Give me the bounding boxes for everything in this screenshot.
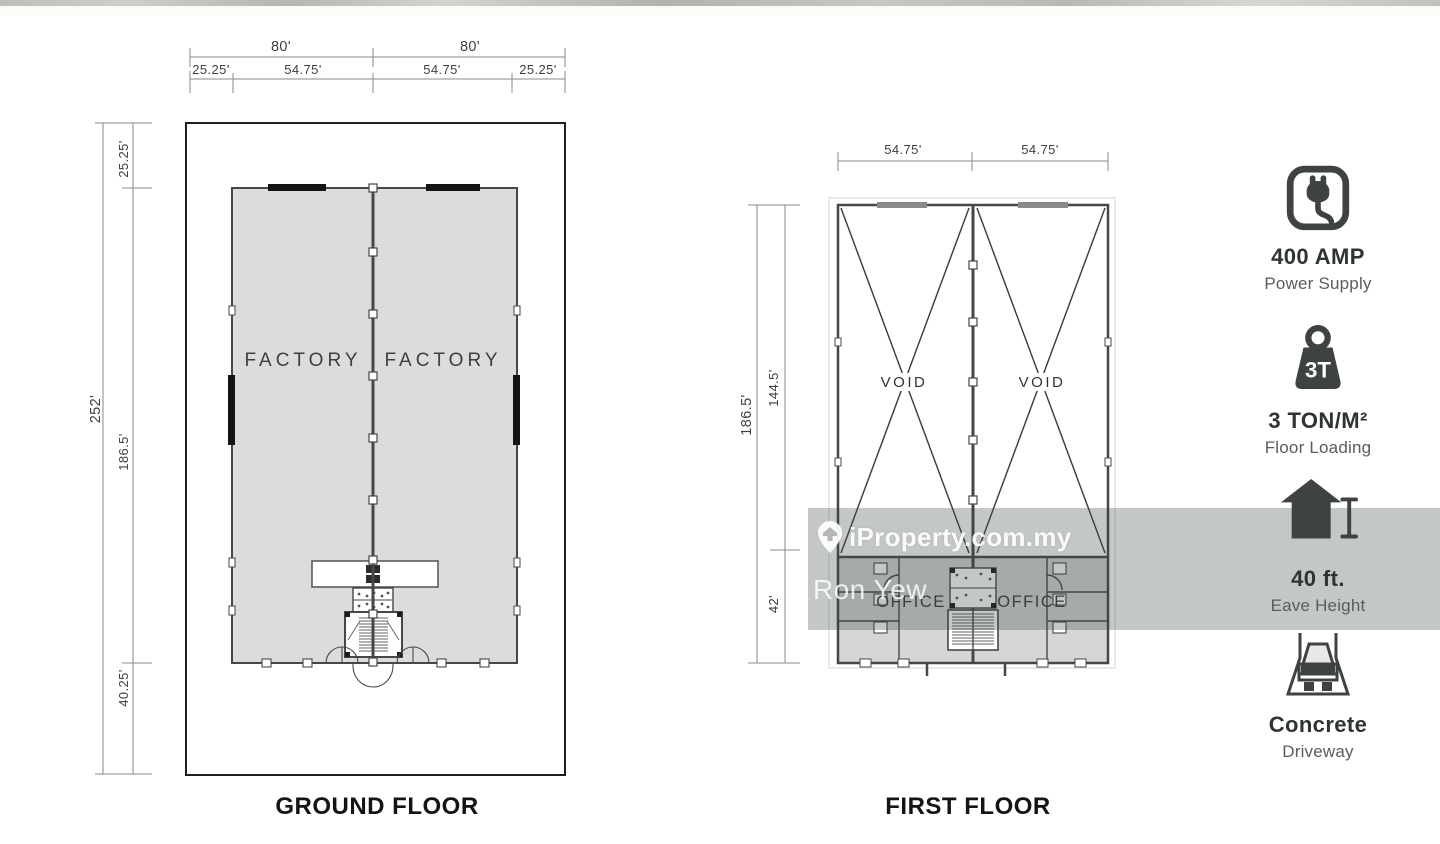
- dim-80-left: 80': [271, 39, 291, 55]
- dim-1445-ff: 144.5': [766, 369, 781, 406]
- truck-driveway-icon: [1283, 630, 1353, 702]
- iproperty-pin-icon: [818, 521, 842, 553]
- feature-value: 3 TON/M²: [1268, 408, 1367, 434]
- floorplan-canvas: 80' 80' 25.25' 54.75' 54.75' 25.25' 252'…: [0, 0, 1440, 844]
- feature-driveway: Concrete Driveway: [1208, 630, 1428, 762]
- dim-252: 252': [88, 395, 104, 424]
- feature-label: Driveway: [1282, 742, 1354, 762]
- feature-value: Concrete: [1269, 712, 1368, 738]
- watermark-logo-row: iProperty.com.my: [818, 521, 1072, 553]
- factory-label-left: FACTORY: [244, 350, 361, 371]
- weight-3t-icon: 3T: [1289, 324, 1347, 398]
- first-floor-plan: 54.75' 54.75' 186.5' 144.5' 42': [739, 142, 1115, 820]
- dim-5475-a: 54.75': [284, 62, 321, 77]
- dim-2525-a: 25.25': [192, 62, 229, 77]
- bottom-wall-stubs: [927, 663, 1005, 676]
- top-opening-left: [268, 184, 326, 191]
- ground-top-dim-row2: [190, 71, 565, 93]
- feature-label: Eave Height: [1271, 596, 1366, 616]
- void-label-left: VOID: [881, 374, 928, 391]
- power-plug-icon: [1285, 164, 1351, 234]
- ground-floor-title: GROUND FLOOR: [275, 793, 478, 820]
- feature-eave-height: 40 ft. Eave Height: [1208, 478, 1428, 616]
- feature-label: Power Supply: [1264, 274, 1371, 294]
- canopy-annex: [312, 561, 438, 587]
- feature-value: 40 ft.: [1291, 566, 1345, 592]
- dim-5475-ff-right: 54.75': [1021, 142, 1058, 157]
- ground-floor-plan: 80' 80' 25.25' 54.75' 54.75' 25.25' 252'…: [88, 39, 565, 820]
- weight-3t-text: 3T: [1305, 357, 1331, 382]
- watermark-agent: Ron Yew: [813, 574, 927, 606]
- top-segment-right: [1018, 202, 1068, 208]
- void-label-right: VOID: [1019, 374, 1066, 391]
- factory-label-right: FACTORY: [384, 350, 501, 371]
- top-opening-right: [426, 184, 480, 191]
- first-left-dims: [748, 205, 800, 663]
- eave-height-icon: [1276, 478, 1360, 556]
- top-segment-left: [877, 202, 927, 208]
- watermark-brand: iProperty.com.my: [849, 522, 1072, 553]
- dim-4025-left: 40.25': [116, 669, 131, 706]
- dim-80-right: 80': [460, 39, 480, 55]
- dim-1865-left: 186.5': [116, 433, 131, 470]
- feature-value: 400 AMP: [1271, 244, 1365, 270]
- dim-2525-left: 25.25': [116, 140, 131, 177]
- side-opening-left: [228, 375, 235, 445]
- side-opening-right: [513, 375, 520, 445]
- dim-1865-ff: 186.5': [739, 394, 755, 435]
- first-floor-title: FIRST FLOOR: [885, 793, 1050, 820]
- dim-42-ff: 42': [766, 595, 781, 613]
- dim-5475-ff-left: 54.75': [884, 142, 921, 157]
- first-top-dims: [838, 152, 1108, 171]
- feature-power-supply: 400 AMP Power Supply: [1208, 164, 1428, 294]
- dim-2525-b: 25.25': [519, 62, 556, 77]
- feature-floor-loading: 3T 3 TON/M² Floor Loading: [1208, 324, 1428, 458]
- ground-top-dim-row1: [190, 48, 565, 67]
- dim-5475-b: 54.75': [423, 62, 460, 77]
- feature-label: Floor Loading: [1265, 438, 1372, 458]
